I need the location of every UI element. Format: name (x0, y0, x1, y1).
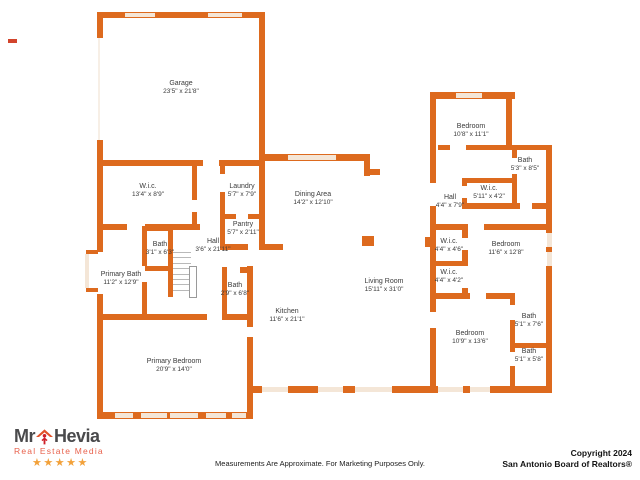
wall-segment (510, 366, 515, 386)
wall-segment (484, 224, 552, 230)
wall-segment (466, 145, 510, 150)
room-dims: 15'11" x 31'0" (365, 286, 404, 293)
room-name: Bedroom (488, 241, 523, 249)
room-dims: 3'6" x 21'11" (195, 246, 230, 253)
wall-segment (506, 92, 512, 150)
wall-segment (168, 226, 173, 297)
stair-tread (173, 252, 191, 253)
room-dims: 11'6" x 12'8" (488, 249, 523, 256)
wall-segment (86, 288, 98, 292)
window-segment (288, 155, 336, 160)
wall-segment (248, 214, 265, 219)
room-name: Hall (195, 238, 230, 246)
room-label-bath-4: Bath3'1" x 6'3" (146, 241, 174, 257)
wall-segment (546, 266, 552, 386)
logo-brand: Mr Hevia (14, 427, 104, 445)
room-name: Primary Bedroom (147, 358, 201, 366)
room-label-bath-21: Bath5'1" x 5'8" (515, 348, 543, 364)
room-name: Living Room (365, 278, 404, 286)
wall-segment (259, 12, 265, 160)
room-name: Primary Bath (101, 271, 141, 279)
house-icon (36, 429, 53, 445)
room-name: Bath (515, 313, 543, 321)
wall-segment (192, 160, 197, 200)
room-label-laundry-2: Laundry5'7" x 7'9" (228, 183, 256, 199)
window-segment (208, 13, 242, 17)
wall-segment (343, 386, 355, 393)
wall-segment (512, 174, 517, 208)
wall-segment (532, 203, 552, 209)
room-dims: 10'9" x 13'6" (452, 338, 488, 345)
wall-segment (546, 145, 552, 233)
window-segment (232, 413, 246, 418)
room-dims: 4'4" x 4'2" (435, 277, 463, 284)
room-name: Laundry (228, 183, 256, 191)
logo-brand-prefix: Mr (14, 427, 35, 445)
wall-segment (430, 298, 436, 312)
room-label-bedroom-12: Bedroom10'8" x 11'1" (453, 123, 488, 139)
room-name: Hall (436, 194, 464, 202)
wall-segment (430, 293, 470, 299)
wall-segment (97, 314, 103, 419)
copyright-line1: Copyright 2024 (502, 448, 632, 459)
room-name: Bath (511, 157, 539, 165)
wall-segment (463, 386, 470, 393)
room-dims: 5'7" x 2'11" (227, 229, 259, 236)
wall-segment (97, 160, 203, 166)
window-segment (85, 254, 89, 288)
window-segment (262, 387, 288, 392)
wall-segment (97, 230, 103, 252)
room-label-w-i-c-16: W.i.c.4'4" x 4'6" (435, 238, 463, 254)
room-name: Bath (515, 348, 543, 356)
stair-rail (189, 266, 197, 298)
room-name: W.i.c. (132, 183, 164, 191)
wall-segment (262, 244, 283, 250)
footer-disclaimer: Measurements Are Approximate. For Market… (215, 459, 425, 468)
room-name: Bath (221, 282, 249, 290)
room-dims: 5'3" x 8'5" (511, 165, 539, 172)
wall-segment (462, 178, 517, 183)
room-label-hall-5: Hall3'6" x 21'11" (195, 238, 230, 254)
room-label-kitchen-10: Kitchen11'6" x 21'1" (269, 308, 304, 324)
room-label-hall-15: Hall4'4" x 7'9" (436, 194, 464, 210)
window-segment (355, 387, 392, 392)
room-label-primary-bath-6: Primary Bath11'2" x 12'9" (101, 271, 141, 287)
logo-tagline: Real Estate Media (14, 447, 104, 456)
room-dims: 11'2" x 12'9" (101, 279, 141, 286)
room-dims: 4'4" x 7'9" (436, 202, 464, 209)
room-label-bedroom-17: Bedroom11'6" x 12'8" (488, 241, 523, 257)
room-dims: 5'7" x 7'9" (228, 191, 256, 198)
wall-segment (220, 214, 236, 219)
window-segment (125, 13, 155, 17)
window-segment (170, 413, 198, 418)
room-label-primary-bedroom-8: Primary Bedroom20'9" x 14'0" (147, 358, 201, 374)
stair-tread (173, 263, 191, 264)
room-label-bedroom-19: Bedroom10'9" x 13'6" (452, 330, 488, 346)
room-dims: 10'8" x 11'1" (453, 131, 488, 138)
window-segment (456, 93, 482, 98)
copyright-block: Copyright 2024 San Antonio Board of Real… (502, 448, 632, 471)
room-dims: 11'6" x 21'1" (269, 316, 304, 323)
wall-segment (97, 166, 103, 230)
room-label-w-i-c-18: W.i.c.4'4" x 4'2" (435, 269, 463, 285)
wall-segment (430, 328, 436, 386)
room-label-bath-20: Bath5'1" x 7'6" (515, 313, 543, 329)
garage-door-opening (98, 38, 100, 140)
wall-segment (370, 169, 380, 175)
room-name: Bath (146, 241, 174, 249)
wall-segment (97, 314, 207, 320)
window-segment (318, 387, 343, 392)
logo-brand-suffix: Hevia (54, 427, 100, 445)
fireplace-pillar (362, 236, 374, 246)
room-name: Garage (163, 80, 199, 88)
wall-segment (430, 92, 436, 183)
wall-segment (192, 212, 197, 230)
wall-segment (240, 267, 253, 273)
room-dims: 5'1" x 5'8" (515, 356, 543, 363)
wall-segment (142, 282, 147, 314)
artifact-mark (8, 39, 17, 43)
room-name: Bedroom (453, 123, 488, 131)
room-name: Pantry (227, 221, 259, 229)
room-dims: 13'4" x 8'9" (132, 191, 164, 198)
wall-segment (288, 386, 318, 393)
room-label-pantry-3: Pantry5'7" x 2'11" (227, 221, 259, 237)
wall-segment (247, 337, 253, 387)
window-segment (547, 233, 552, 247)
room-name: Dining Area (293, 191, 332, 199)
room-dims: 23'5" x 21'8" (163, 88, 199, 95)
room-label-living-room-11: Living Room15'11" x 31'0" (365, 278, 404, 294)
room-label-w-i-c-14: W.i.c.5'11" x 4'2" (473, 185, 505, 201)
wall-segment (490, 386, 552, 393)
room-dims: 14'2" x 12'10" (293, 199, 332, 206)
wall-segment (438, 145, 450, 150)
room-name: W.i.c. (435, 269, 463, 277)
room-label-garage-0: Garage23'5" x 21'8" (163, 80, 199, 96)
room-dims: 3'1" x 6'3" (146, 249, 174, 256)
logo-stars: ★★★★★ (32, 458, 104, 469)
room-dims: 4'4" x 4'6" (435, 246, 463, 253)
window-segment (206, 413, 226, 418)
window-segment (470, 387, 490, 392)
wall-segment (392, 386, 438, 393)
room-dims: 5'1" x 7'6" (515, 321, 543, 328)
room-name: W.i.c. (473, 185, 505, 193)
wall-segment (248, 386, 262, 393)
window-segment (438, 387, 463, 392)
window-segment (547, 252, 552, 266)
window-segment (115, 413, 133, 418)
room-name: W.i.c. (435, 238, 463, 246)
room-dims: 20'9" x 14'0" (147, 366, 201, 373)
wall-segment (462, 224, 468, 238)
room-dims: 5'11" x 4'2" (473, 193, 505, 200)
room-dims: 2'9" x 6'8" (221, 290, 249, 297)
room-label-bath-7: Bath2'9" x 6'8" (221, 282, 249, 298)
wall-segment (97, 294, 103, 316)
room-name: Kitchen (269, 308, 304, 316)
window-segment (141, 413, 167, 418)
stair-tread (173, 257, 191, 258)
wall-segment (220, 160, 225, 174)
wall-segment (510, 298, 515, 305)
room-label-bath-13: Bath5'3" x 8'5" (511, 157, 539, 173)
logo: Mr Hevia Real Estate Media ★★★★★ (14, 427, 104, 469)
copyright-line2: San Antonio Board of Realtors® (502, 459, 632, 470)
wall-segment (97, 12, 103, 38)
wall-segment (259, 160, 265, 250)
room-name: Bedroom (452, 330, 488, 338)
room-label-w-i-c-1: W.i.c.13'4" x 8'9" (132, 183, 164, 199)
room-label-dining-area-9: Dining Area14'2" x 12'10" (293, 191, 332, 207)
floor-plan: Garage23'5" x 21'8"W.i.c.13'4" x 8'9"Lau… (0, 0, 640, 480)
wall-segment (430, 261, 468, 266)
